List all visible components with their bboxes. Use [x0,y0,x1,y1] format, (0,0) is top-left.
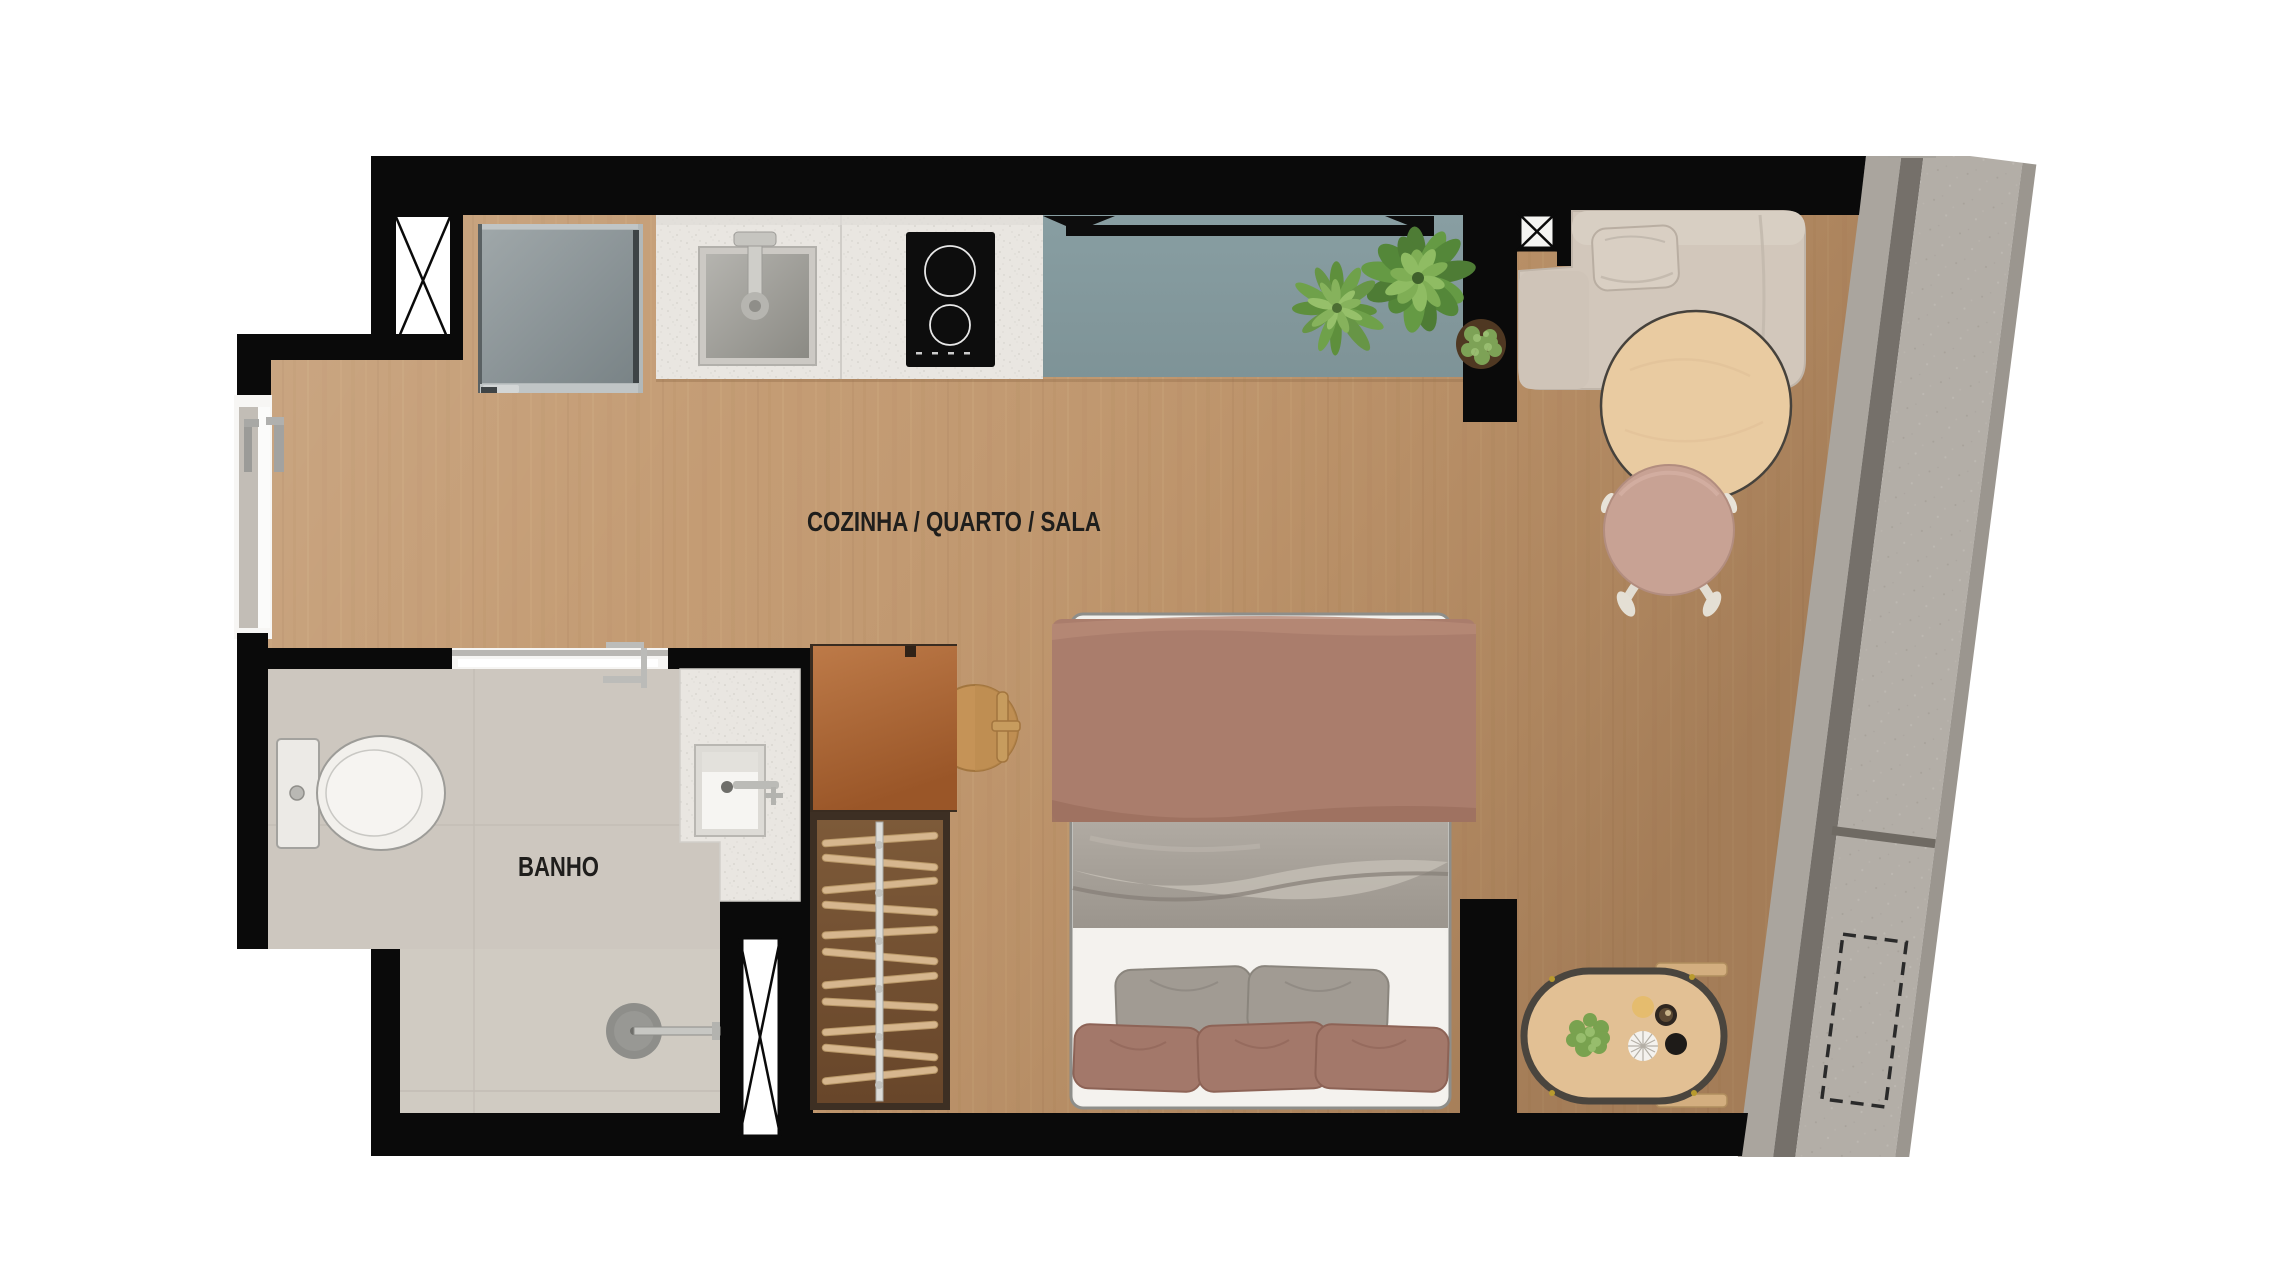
svg-text:COZINHA / QUARTO / SALA: COZINHA / QUARTO / SALA [807,506,1101,537]
svg-text:BANHO: BANHO [518,851,599,882]
